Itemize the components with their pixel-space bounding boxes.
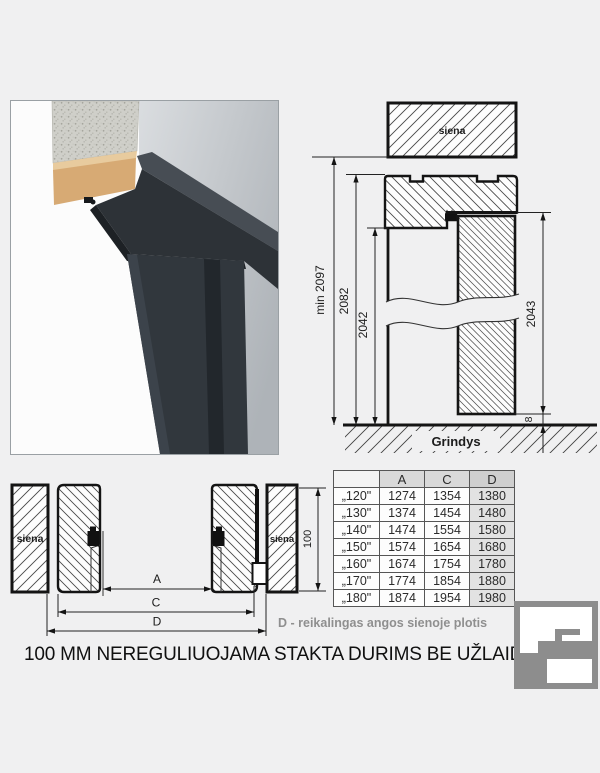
floor-label: Grindys [431,434,480,449]
dim-frame-height [346,175,385,426]
table-cell-c: 1754 [425,556,470,573]
dim-opening-height [367,228,388,425]
table-header-size [334,471,380,488]
frame-profile-right [212,485,267,592]
table-cell-size: „160" [334,556,380,573]
dim-opening-label: 2042 [356,311,370,338]
table-row: „140" 1474 1554 1580 [334,522,515,539]
table-cell-a: 1374 [380,505,425,522]
table-cell-d: 1780 [470,556,515,573]
table-row: „170" 1774 1854 1880 [334,573,515,590]
brand-logo [514,601,598,689]
table-row: „120" 1274 1354 1380 [334,488,515,505]
table-cell-a: 1774 [380,573,425,590]
door-edge [255,489,259,563]
table-cell-d: 1480 [470,505,515,522]
table-row: „150" 1574 1654 1680 [334,539,515,556]
table-cell-c: 1354 [425,488,470,505]
table-header-c: C [425,471,470,488]
table-cell-c: 1454 [425,505,470,522]
seal-left [88,531,100,546]
dim-a [103,586,212,591]
dim-total-label: min 2097 [313,265,327,315]
table-row: „160" 1674 1754 1780 [334,556,515,573]
seal-left-tab [90,527,96,532]
table-cell-a: 1674 [380,556,425,573]
dim-door-label: 2043 [524,300,538,327]
logo-block [520,653,547,683]
strike-plate [253,563,267,584]
frame-corner-photo [10,100,279,455]
table-cell-d: 1680 [470,539,515,556]
table-cell-c: 1654 [425,539,470,556]
wall-block-left: siena [12,485,48,592]
table-cell-d: 1580 [470,522,515,539]
table-row: „130" 1374 1454 1480 [334,505,515,522]
table-cell-c: 1854 [425,573,470,590]
table-cell-size: „130" [334,505,380,522]
table-header-row: A C D [334,471,515,488]
wall-label: siena [439,125,466,137]
table-header-d: D [470,471,515,488]
table-cell-c: 1954 [425,590,470,607]
dim-depth-label: 100 [302,530,314,548]
dim-gap-label: 8 [523,416,535,422]
wall-block-right: siena [267,485,297,592]
dim-frame-label: 2082 [337,287,351,314]
wall-label-left: siena [17,533,44,545]
page-title: 100 MM NEREGULIUOJAMA STAKTA DURIMS BE U… [24,644,550,666]
table-cell-a: 1274 [380,488,425,505]
table-cell-size: „180" [334,590,380,607]
table-cell-size: „140" [334,522,380,539]
table-cell-size: „170" [334,573,380,590]
dim-d-label: D [153,615,162,629]
note-label: D - reikalingas angos sienoje plotis [278,616,487,630]
spec-sheet: siena Grindys [0,0,600,773]
table-cell-d: 1380 [470,488,515,505]
dim-a-label: A [153,572,161,586]
table-row: „180" 1874 1954 1980 [334,590,515,607]
frame-corner-illustration [11,101,278,454]
frame-profile-left [58,485,103,596]
table-cell-size: „150" [334,539,380,556]
vertical-section-drawing: siena Grindys [310,95,600,467]
table-cell-a: 1874 [380,590,425,607]
dim-c-label: C [152,596,161,610]
seal-right-tab [216,527,222,532]
table-cell-size: „120" [334,488,380,505]
size-table: A C D „120" 1274 1354 1380 „130" 1374 14… [333,470,515,607]
table-header-a: A [380,471,425,488]
wall-label-right: siena [270,534,295,545]
table-cell-c: 1554 [425,522,470,539]
seal-dot [91,200,96,205]
seal-right [213,531,225,546]
table-cell-d: 1880 [470,573,515,590]
table-cell-d: 1980 [470,590,515,607]
table-cell-a: 1474 [380,522,425,539]
wall-lintel-block: siena [388,103,516,157]
table-cell-a: 1574 [380,539,425,556]
